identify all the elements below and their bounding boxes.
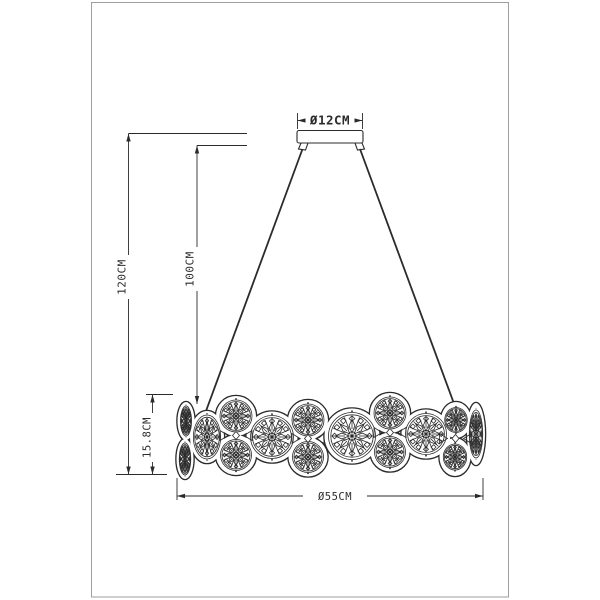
cable-gripper-left bbox=[299, 143, 309, 150]
dim-canopy-diameter: Ø12CM bbox=[298, 113, 363, 130]
label-canopy-diameter: Ø12CM bbox=[309, 113, 350, 128]
label-ring-diameter: Ø55CM bbox=[318, 491, 352, 503]
suspension-cables bbox=[206, 149, 456, 411]
ceiling-canopy bbox=[297, 131, 365, 151]
label-overall-height: 120CM bbox=[116, 259, 129, 295]
label-ring-height: 15.8CM bbox=[142, 417, 154, 458]
cable-right bbox=[360, 149, 456, 409]
label-suspension-length: 100CM bbox=[184, 251, 197, 287]
drawing-canvas: Ø12CM 120CM 100CM 15.8CM Ø55CM bbox=[0, 0, 600, 600]
dim-ring-height: 15.8CM bbox=[116, 395, 173, 475]
image-frame bbox=[92, 3, 509, 598]
dimension-drawing: Ø12CM 120CM 100CM 15.8CM Ø55CM bbox=[0, 0, 600, 600]
cable-gripper-right bbox=[355, 143, 365, 150]
cable-left bbox=[206, 149, 303, 411]
dim-suspension-length: 100CM bbox=[184, 146, 248, 405]
chandelier-ring bbox=[177, 393, 486, 479]
dim-ring-diameter: Ø55CM bbox=[177, 478, 483, 503]
